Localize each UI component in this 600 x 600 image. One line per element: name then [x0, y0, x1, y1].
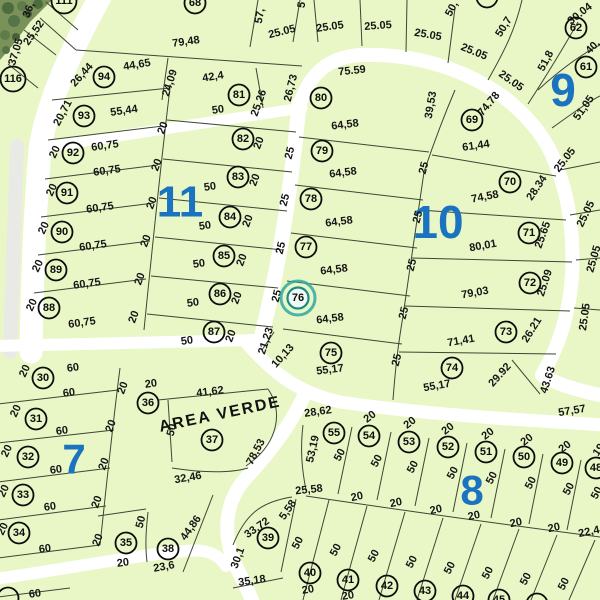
- lot-number: 93: [78, 110, 90, 122]
- lot-number: 40: [304, 567, 316, 579]
- lot-number: 69: [466, 114, 478, 126]
- lot-number: 51: [480, 446, 492, 458]
- lot-number: 79: [316, 145, 328, 157]
- lot-number: 76: [292, 292, 304, 304]
- lot-number: 78: [305, 193, 317, 205]
- lot-number: 49: [556, 457, 568, 469]
- dimension-label: 20: [467, 509, 481, 523]
- lot-number: 38: [162, 543, 174, 555]
- dimension-label: 60: [49, 463, 63, 477]
- lot-number: 116: [4, 73, 22, 85]
- lot-number: 44: [457, 590, 470, 600]
- dimension-label: 20: [350, 490, 364, 504]
- dimension-label: 20: [429, 503, 443, 517]
- lot-number: 86: [214, 288, 226, 300]
- dimension-label: 20: [509, 516, 523, 530]
- lot-number: 48: [590, 462, 600, 474]
- lot-number: 94: [98, 71, 111, 83]
- lot-number: 80: [315, 92, 327, 104]
- dimension-label: 20: [389, 496, 403, 510]
- lot-number: 35: [120, 537, 132, 549]
- block-number-7: 7: [62, 436, 85, 483]
- lot-number: 111: [55, 0, 72, 7]
- lot-number: 52: [442, 441, 454, 453]
- lot-number: 89: [50, 264, 62, 276]
- lot-number: 81: [233, 89, 245, 101]
- dimension-label: 60: [28, 587, 42, 600]
- dimension-label: 20: [547, 521, 561, 535]
- lot-number: 88: [43, 302, 55, 314]
- lot-number: 50: [518, 451, 530, 463]
- lot-number: 84: [224, 211, 237, 223]
- dimension-label: 20: [116, 556, 130, 570]
- lot-number: 71: [523, 227, 535, 239]
- dimension-label: 25.05: [364, 19, 392, 33]
- dimension-label: 60: [38, 542, 52, 556]
- lot-number: 74: [446, 362, 459, 374]
- lot-number: 53: [403, 436, 415, 448]
- lot-number: 31: [30, 413, 42, 425]
- lot-number: 85: [218, 250, 230, 262]
- lot-number: 90: [56, 226, 68, 238]
- lot-number: 91: [61, 187, 73, 199]
- lot-number: 45: [493, 594, 505, 600]
- lot-number: 62: [570, 22, 582, 34]
- lot-number: 55: [328, 427, 340, 439]
- map-canvas: 9101178 36,25,5237,0579,4857,525.0525.05…: [0, 0, 600, 600]
- dimension-label: 60: [62, 386, 76, 400]
- lot-number: 54: [363, 430, 376, 442]
- dimension-label: 60: [43, 500, 57, 514]
- lot-number: 87: [208, 326, 220, 338]
- lot-number: 41: [342, 574, 354, 586]
- lot-number: 61: [580, 61, 592, 73]
- road-left-gray-strip: [10, 146, 17, 352]
- lot-number: 83: [232, 171, 244, 183]
- lot-number: 36: [142, 397, 154, 409]
- lot-number: 32: [22, 451, 34, 463]
- lot-number: 33: [17, 489, 29, 501]
- dimension-label: 50: [180, 334, 194, 348]
- block-number-11: 11: [157, 178, 204, 227]
- dimension-label: 50: [186, 296, 200, 310]
- lot-number: 30: [37, 372, 49, 384]
- lot-number: 70: [504, 176, 516, 188]
- dimension-label: 50: [192, 257, 206, 271]
- lot-number: 43: [419, 585, 431, 597]
- lot-number: 77: [300, 241, 312, 253]
- lot-number: 68: [189, 0, 201, 9]
- lot-number: 82: [237, 133, 249, 145]
- block-number-8: 8: [460, 467, 483, 514]
- dimension-label: 20: [301, 583, 315, 597]
- lot-number: 42: [381, 580, 393, 592]
- dimension-label: 60: [66, 361, 80, 375]
- lot-number: 72: [524, 277, 536, 289]
- lot-number: 39: [262, 532, 274, 544]
- lot-number: 37: [206, 434, 218, 446]
- cadastral-map: 9101178 36,25,5237,0579,4857,525.0525.05…: [0, 0, 600, 600]
- dimension-label: 60: [55, 424, 69, 438]
- dimension-label: 50: [203, 180, 217, 194]
- dimension-label: 50: [211, 103, 225, 117]
- lot-number: 75: [325, 347, 337, 359]
- lot-number: 34: [13, 527, 26, 539]
- block-number-9: 9: [550, 64, 576, 116]
- dimension-label: 50: [198, 219, 212, 233]
- dimension-label: 20: [144, 377, 158, 391]
- lot-number: 73: [500, 326, 512, 338]
- lot-number: 92: [67, 147, 79, 159]
